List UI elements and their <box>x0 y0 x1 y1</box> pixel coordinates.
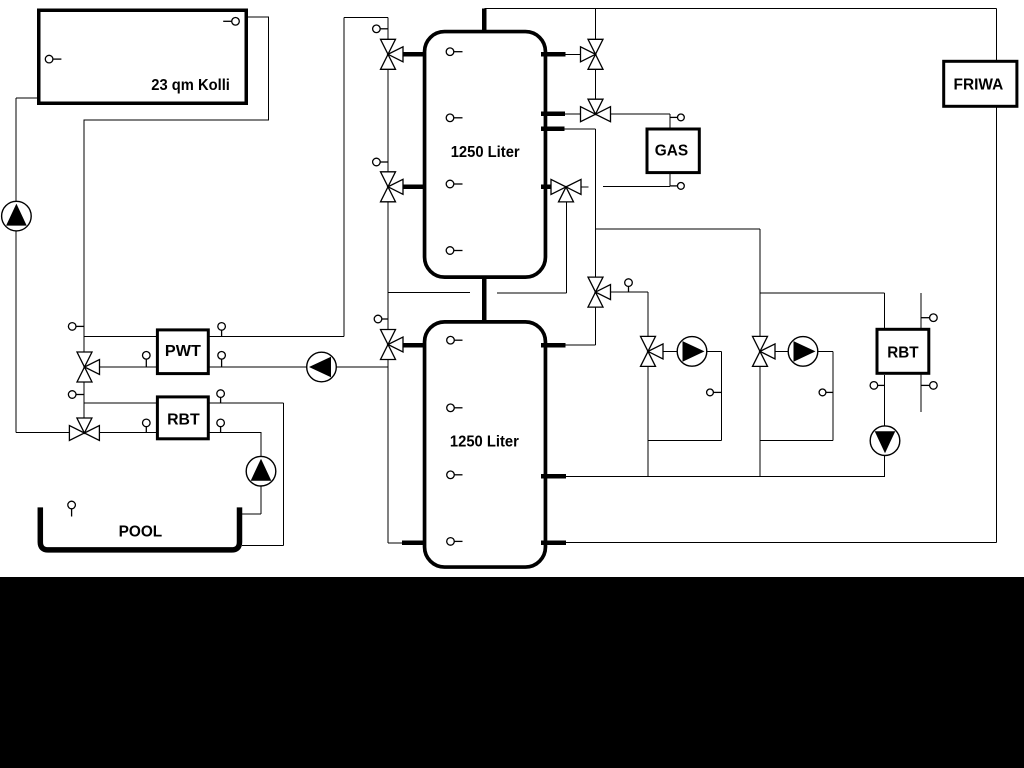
svg-text:23 qm Kolli: 23 qm Kolli <box>151 77 230 94</box>
svg-text:RBT: RBT <box>887 344 919 361</box>
svg-text:1250 Liter: 1250 Liter <box>451 144 520 161</box>
svg-text:PWT: PWT <box>165 343 201 360</box>
svg-text:POOL: POOL <box>119 523 163 540</box>
svg-text:RBT: RBT <box>167 412 200 429</box>
svg-text:GAS: GAS <box>655 143 688 160</box>
svg-text:FRIWA: FRIWA <box>954 77 1004 94</box>
svg-text:1250 Liter: 1250 Liter <box>450 433 519 450</box>
